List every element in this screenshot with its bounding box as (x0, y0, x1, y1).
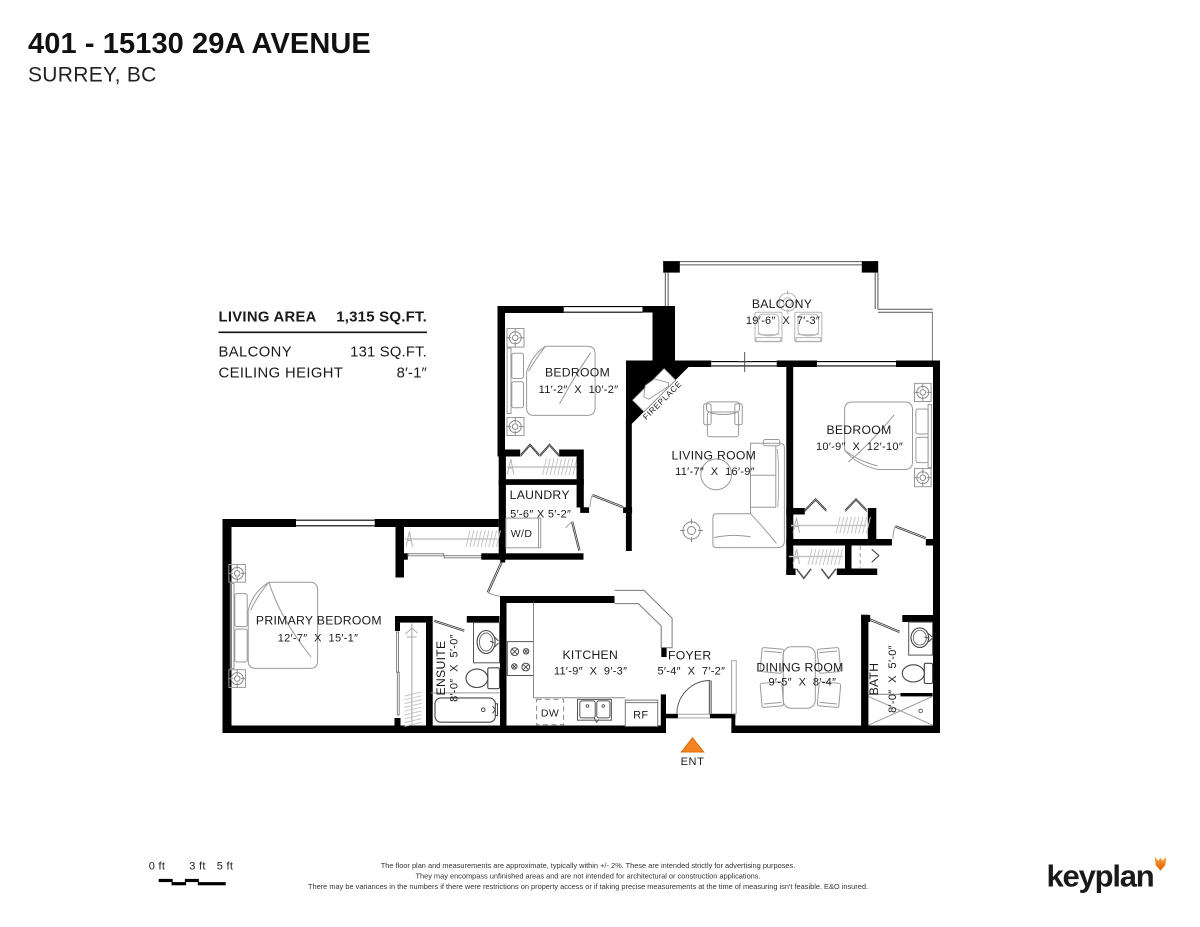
svg-text:5′-6″ X 5′-2″: 5′-6″ X 5′-2″ (510, 509, 571, 521)
svg-text:FOYER: FOYER (668, 649, 711, 663)
svg-text:12′-7″ X 15′-1″: 12′-7″ X 15′-1″ (278, 633, 359, 645)
svg-text:5 ft: 5 ft (217, 861, 234, 873)
svg-text:LIVING ROOM: LIVING ROOM (672, 449, 757, 463)
svg-text:LIVING AREA: LIVING AREA (219, 310, 317, 326)
svg-text:PRIMARY BEDROOM: PRIMARY BEDROOM (256, 614, 382, 628)
svg-text:401 - 15130 29A AVENUE: 401 - 15130 29A AVENUE (28, 28, 371, 60)
svg-text:KITCHEN: KITCHEN (563, 648, 619, 662)
svg-text:8′-0″ X 5′-0″: 8′-0″ X 5′-0″ (887, 645, 899, 713)
svg-text:DW: DW (541, 708, 559, 720)
svg-text:BEDROOM: BEDROOM (545, 366, 610, 380)
svg-text:19′-6″ X 7′-3″: 19′-6″ X 7′-3″ (746, 315, 820, 327)
svg-text:RF: RF (633, 710, 648, 722)
svg-text:W/D: W/D (511, 528, 533, 540)
svg-text:11′-7″ X 16′-9″: 11′-7″ X 16′-9″ (675, 466, 755, 478)
svg-text:8′-1″: 8′-1″ (397, 366, 427, 382)
svg-text:8′-0″ X 5′-0″: 8′-0″ X 5′-0″ (449, 634, 461, 702)
svg-text:ENSUITE: ENSUITE (434, 641, 448, 696)
svg-text:ENT: ENT (681, 756, 705, 768)
svg-text:0 ft: 0 ft (149, 861, 166, 873)
svg-text:11′-9″ X 9′-3″: 11′-9″ X 9′-3″ (554, 666, 627, 678)
svg-text:10′-9″ X 12′-10″: 10′-9″ X 12′-10″ (816, 441, 903, 453)
svg-text:The floor plan and measurement: The floor plan and measurements are appr… (381, 861, 796, 870)
svg-text:LAUNDRY: LAUNDRY (510, 488, 570, 502)
svg-text:SURREY, BC: SURREY, BC (28, 64, 157, 87)
svg-text:3 ft: 3 ft (189, 861, 206, 873)
svg-text:9′-5″ X 8′-4″: 9′-5″ X 8′-4″ (769, 677, 837, 689)
svg-text:CEILING HEIGHT: CEILING HEIGHT (219, 366, 344, 382)
svg-text:1,315 SQ.FT.: 1,315 SQ.FT. (336, 309, 427, 326)
svg-text:They may encompass unfinished: They may encompass unfinished areas and … (415, 872, 760, 881)
svg-text:BALCONY: BALCONY (219, 345, 293, 361)
svg-text:There may be variances in the: There may be variances in the numbers if… (308, 882, 868, 891)
svg-text:DINING ROOM: DINING ROOM (756, 661, 843, 675)
svg-text:11′-2″ X 10′-2″: 11′-2″ X 10′-2″ (539, 384, 619, 396)
svg-text:131 SQ.FT.: 131 SQ.FT. (350, 345, 427, 361)
svg-text:keyplan: keyplan (1047, 859, 1154, 894)
svg-text:BALCONY: BALCONY (752, 297, 812, 311)
svg-text:5′-4″ X 7′-2″: 5′-4″ X 7′-2″ (658, 666, 726, 678)
svg-text:BEDROOM: BEDROOM (826, 423, 891, 437)
svg-text:BATH: BATH (867, 663, 881, 696)
